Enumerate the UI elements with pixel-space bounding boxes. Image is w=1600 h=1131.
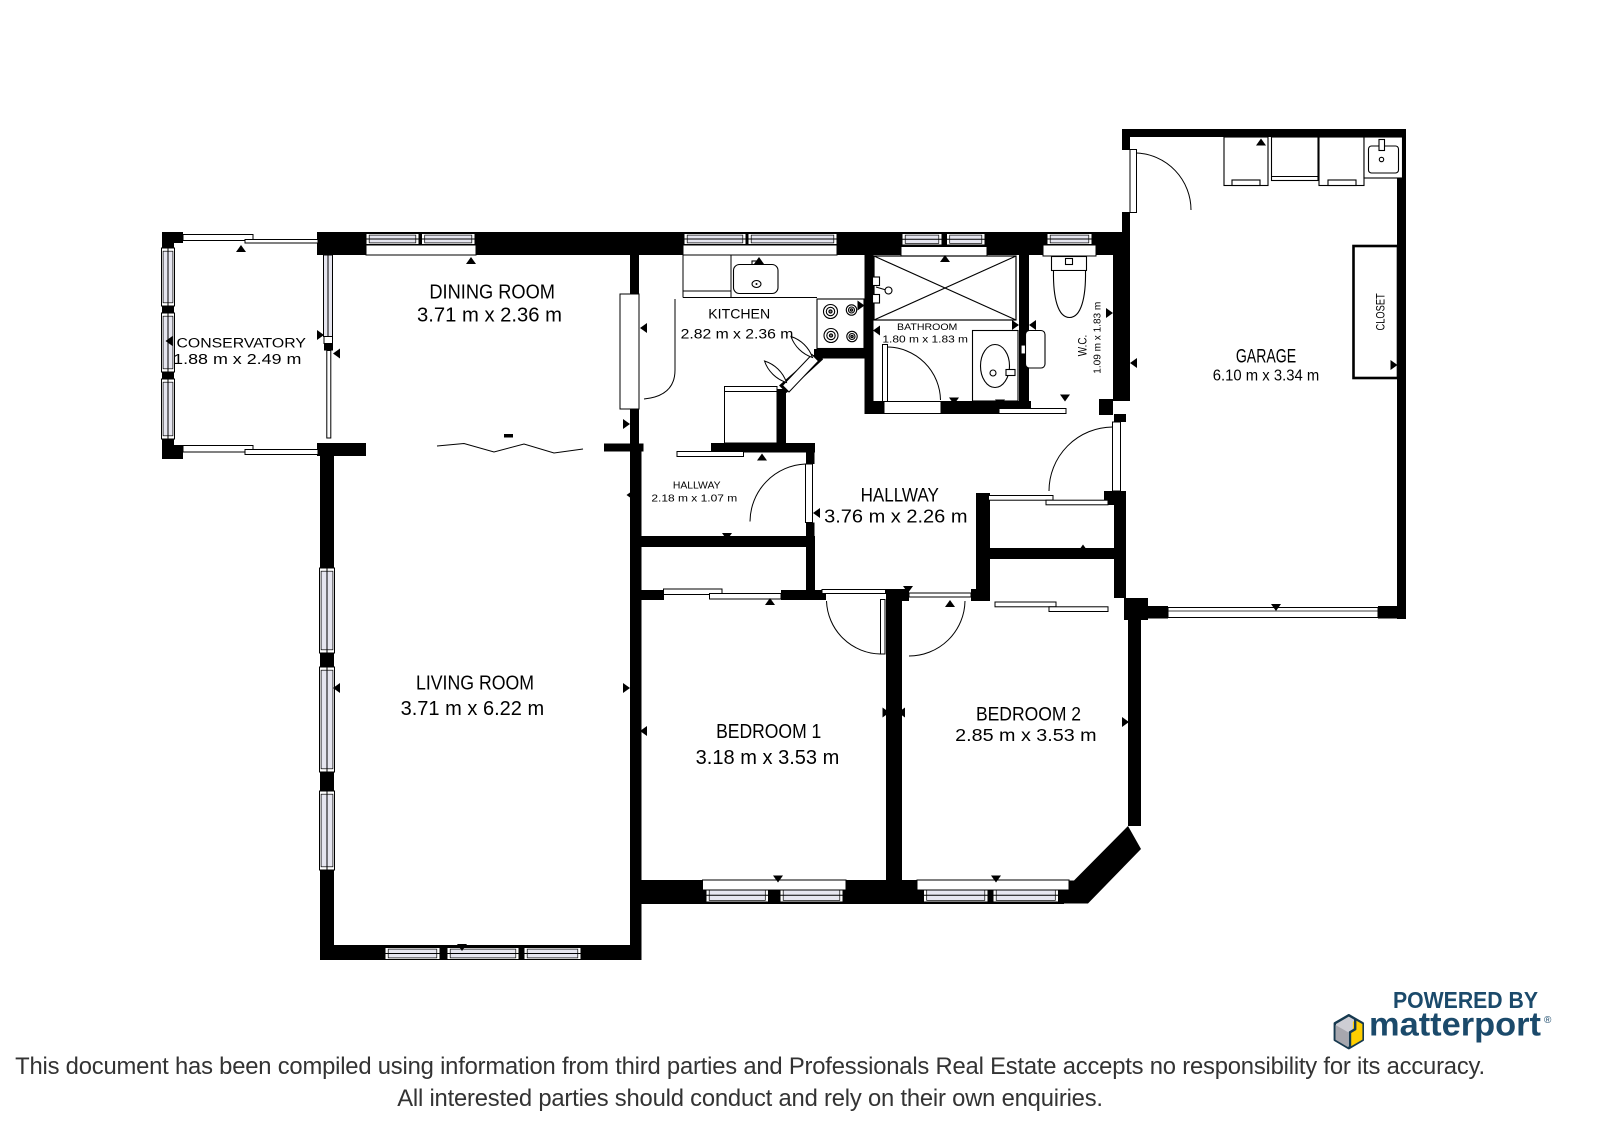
svg-text:LIVING ROOM: LIVING ROOM: [416, 672, 534, 694]
svg-text:BEDROOM 1: BEDROOM 1: [716, 721, 821, 743]
svg-text:HALLWAY: HALLWAY: [673, 481, 721, 492]
svg-text:3.71 m x 2.36 m: 3.71 m x 2.36 m: [417, 304, 562, 326]
svg-text:BEDROOM 2: BEDROOM 2: [976, 704, 1081, 725]
svg-text:3.18 m x 3.53 m: 3.18 m x 3.53 m: [696, 747, 840, 769]
svg-text:POWERED BY: POWERED BY: [1393, 987, 1538, 1013]
svg-text:2.18 m x 1.07 m: 2.18 m x 1.07 m: [651, 494, 737, 505]
svg-text:HALLWAY: HALLWAY: [861, 485, 939, 507]
svg-text:W.C.: W.C.: [1078, 335, 1090, 356]
svg-text:1.80 m x 1.83 m: 1.80 m x 1.83 m: [882, 335, 968, 346]
svg-text:®: ®: [1544, 1015, 1552, 1026]
svg-text:3.76 m x 2.26 m: 3.76 m x 2.26 m: [824, 506, 967, 526]
svg-text:1.09 m x 1.83 m: 1.09 m x 1.83 m: [1092, 302, 1103, 374]
svg-text:GARAGE: GARAGE: [1236, 346, 1296, 368]
svg-text:1.88 m x 2.49 m: 1.88 m x 2.49 m: [173, 352, 301, 368]
svg-text:6.10 m x 3.34 m: 6.10 m x 3.34 m: [1213, 368, 1319, 385]
svg-text:2.82 m x 2.36 m: 2.82 m x 2.36 m: [681, 326, 794, 342]
svg-text:KITCHEN: KITCHEN: [708, 305, 770, 321]
svg-text:DINING ROOM: DINING ROOM: [429, 281, 555, 303]
svg-text:CONSERVATORY: CONSERVATORY: [177, 335, 307, 351]
svg-text:2.85 m x 3.53 m: 2.85 m x 3.53 m: [955, 725, 1096, 745]
svg-text:BATHROOM: BATHROOM: [897, 322, 957, 333]
svg-text:3.71 m x 6.22 m: 3.71 m x 6.22 m: [401, 698, 545, 720]
svg-text:CLOSET: CLOSET: [1374, 293, 1388, 331]
